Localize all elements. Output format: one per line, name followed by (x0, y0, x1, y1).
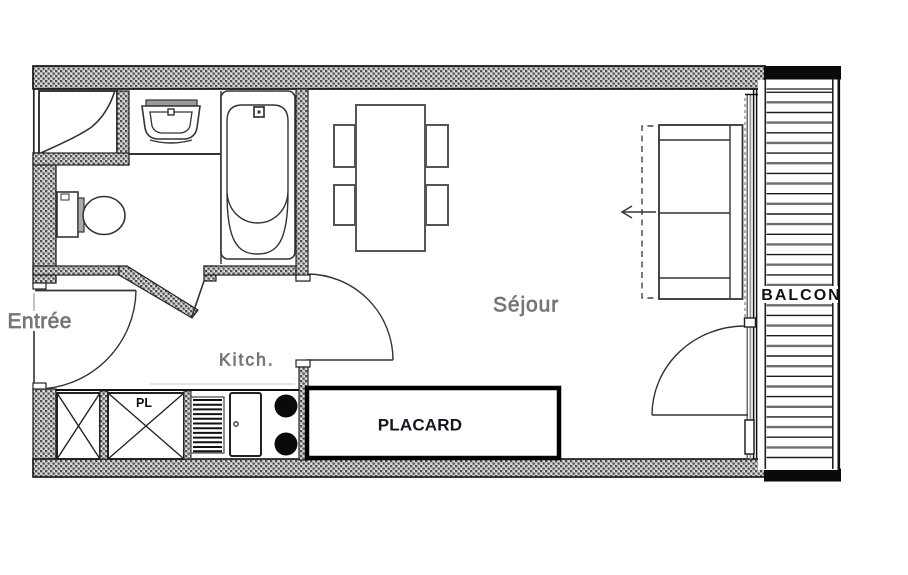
svg-text:PL: PL (136, 396, 152, 410)
svg-text:Kitch.: Kitch. (219, 350, 275, 370)
svg-text:Séjour: Séjour (493, 294, 559, 317)
svg-text:PLACARD: PLACARD (378, 416, 463, 435)
svg-text:BALCON: BALCON (761, 287, 841, 304)
svg-text:Entrée: Entrée (8, 310, 72, 333)
